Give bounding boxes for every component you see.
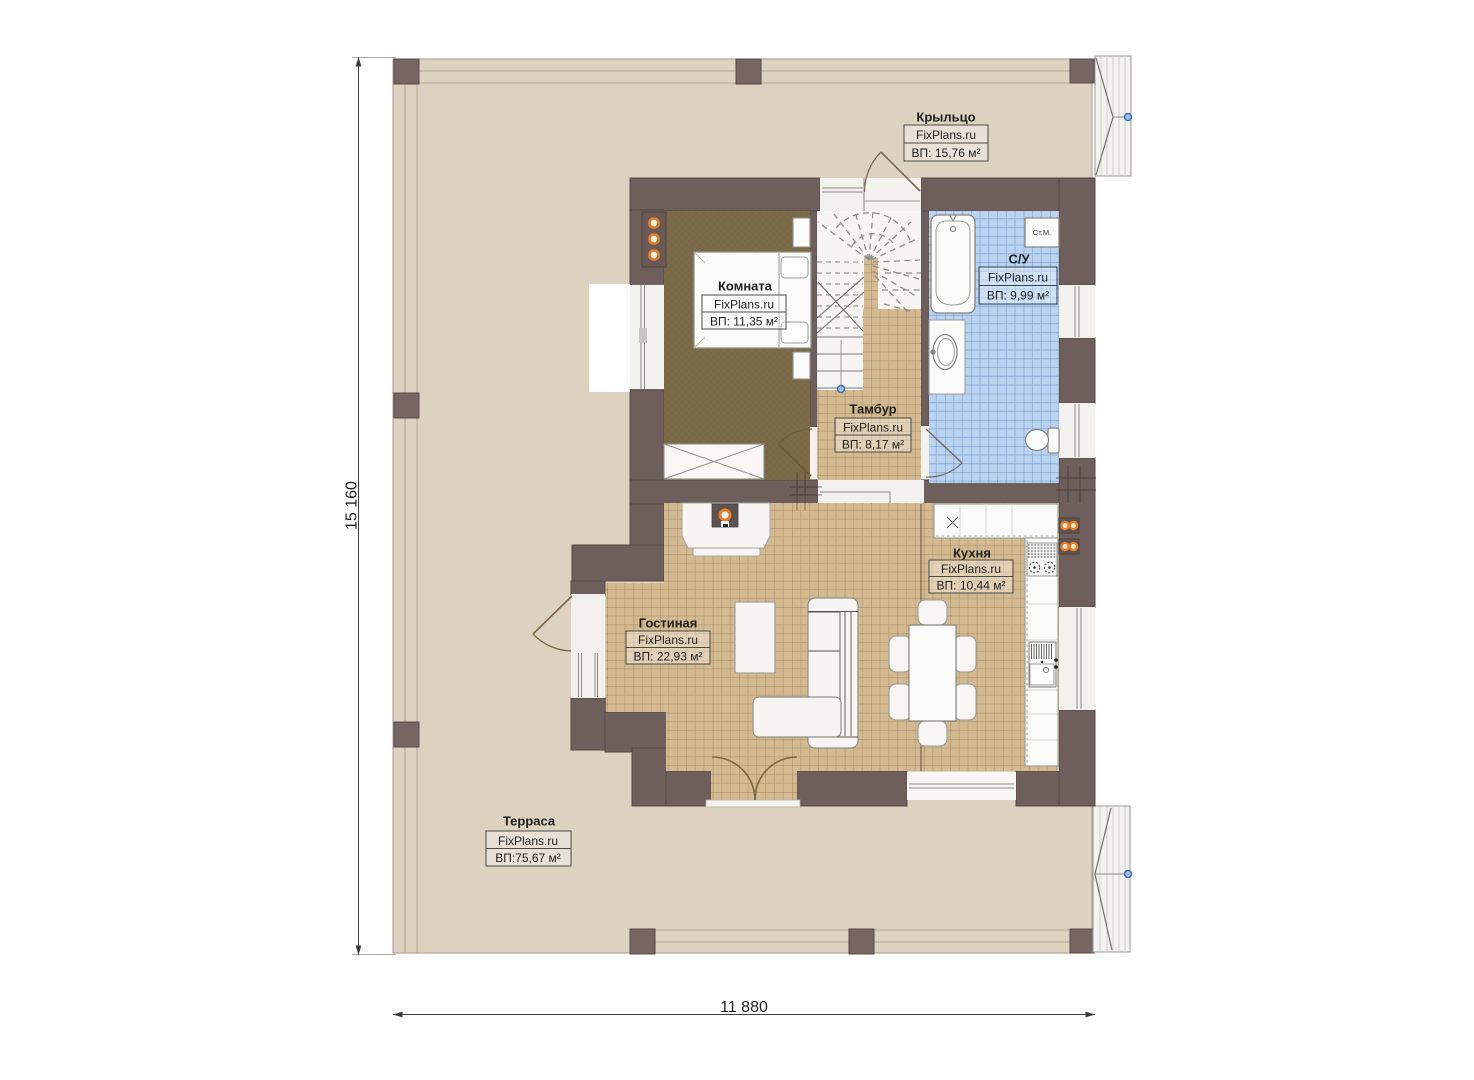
svg-text:Тамбур: Тамбур xyxy=(849,402,896,417)
svg-text:Ст.М.: Ст.М. xyxy=(1033,228,1051,237)
svg-text:Крыльцо: Крыльцо xyxy=(916,110,975,125)
svg-text:ВП: 22,93 м²: ВП: 22,93 м² xyxy=(634,650,703,664)
svg-text:ВП:75,67 м²: ВП:75,67 м² xyxy=(495,851,561,865)
svg-text:Гостиная: Гостиная xyxy=(639,616,698,631)
svg-text:FixPlans.ru: FixPlans.ru xyxy=(988,271,1048,285)
svg-text:Кухня: Кухня xyxy=(953,546,991,561)
svg-text:ВП: 10,44 м²: ВП: 10,44 м² xyxy=(937,579,1006,593)
svg-text:ВП: 9,99 м²: ВП: 9,99 м² xyxy=(987,289,1049,303)
svg-text:ВП: 8,17 м²: ВП: 8,17 м² xyxy=(842,438,904,452)
svg-text:FixPlans.ru: FixPlans.ru xyxy=(941,562,1001,576)
svg-text:FixPlans.ru: FixPlans.ru xyxy=(916,128,976,142)
svg-text:ВП: 11,35 м²: ВП: 11,35 м² xyxy=(710,315,778,329)
svg-text:ВП: 15,76 м²: ВП: 15,76 м² xyxy=(912,146,981,160)
svg-text:FixPlans.ru: FixPlans.ru xyxy=(843,421,903,435)
svg-text:С/У: С/У xyxy=(1008,252,1030,267)
svg-text:FixPlans.ru: FixPlans.ru xyxy=(714,298,774,312)
svg-text:11 880: 11 880 xyxy=(720,999,768,1016)
svg-text:Комната: Комната xyxy=(718,279,773,294)
svg-text:FixPlans.ru: FixPlans.ru xyxy=(638,633,698,647)
svg-text:15 160: 15 160 xyxy=(344,481,361,530)
svg-text:Терраса: Терраса xyxy=(503,814,556,829)
svg-text:FixPlans.ru: FixPlans.ru xyxy=(498,834,558,848)
